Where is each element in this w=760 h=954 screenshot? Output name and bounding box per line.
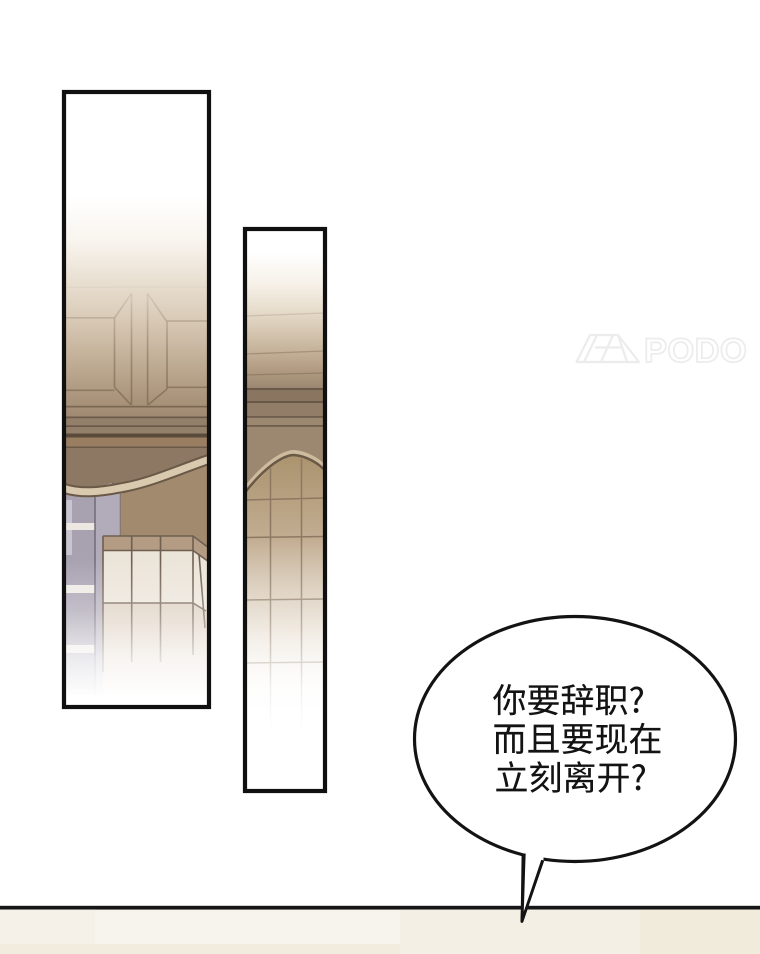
svg-text:PODO: PODO	[644, 332, 747, 370]
